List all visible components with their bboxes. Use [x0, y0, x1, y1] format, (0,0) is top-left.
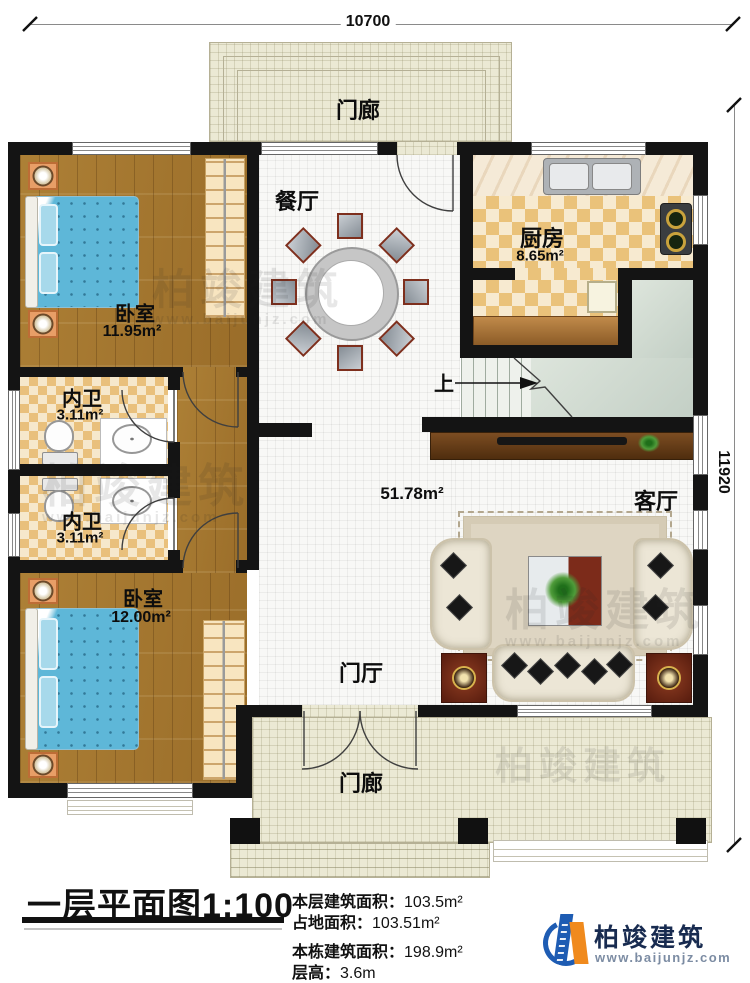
door-opening [397, 142, 457, 155]
room-label-bedroom2: 卧室 [123, 583, 163, 612]
dining-chair [403, 279, 429, 305]
stat-label: 占地面积： [292, 915, 372, 932]
lamp-icon [33, 755, 54, 776]
stat-value: 198.9m² [404, 944, 463, 961]
wall-segment [236, 367, 247, 377]
watermark-text: 柏竣建筑 [42, 462, 250, 510]
room-label-living: 客厅 [634, 484, 678, 516]
pillow [39, 676, 58, 728]
area-label-bedroom1: 11.95m² [103, 323, 162, 341]
window [693, 195, 708, 245]
watermark: 柏竣建筑 www.baijunjz.com [152, 268, 344, 328]
entry-steps [230, 843, 490, 878]
sink-basin [549, 163, 589, 190]
dimension-line-right [734, 105, 735, 845]
pillow [39, 252, 58, 294]
watermark-url: www.baijunjz.com [505, 634, 705, 650]
stove [660, 203, 692, 255]
watermark: 柏竣建筑 [495, 748, 671, 788]
nightstand [28, 752, 58, 778]
wall-segment [247, 423, 312, 437]
stat-floor-height: 层高：3.6m [292, 959, 376, 983]
watermark-text: 柏竣建筑 [505, 588, 705, 634]
wall-segment [460, 268, 515, 280]
lamp-icon [452, 666, 476, 690]
kitchen-lower-counter [473, 316, 620, 347]
wall-segment [460, 345, 632, 358]
watermark-text: 柏竣建筑 [152, 268, 344, 312]
brand-name: 柏竣建筑 [594, 918, 706, 954]
porch-column [676, 818, 706, 844]
stat-label: 层高： [292, 965, 340, 982]
wall-segment [693, 475, 708, 510]
stairs-up-label: 上 [434, 368, 454, 397]
wall-segment [460, 155, 473, 358]
area-label-hall: 51.78m² [380, 484, 443, 504]
stair-landing [531, 358, 693, 417]
pillow [39, 204, 58, 246]
floor-plan-canvas: 柏竣建筑 www.baijunjz.com 柏竣建筑 www.baijunjz.… [0, 0, 750, 983]
watermark-text: 柏竣建筑 [495, 748, 671, 788]
stat-land-area: 占地面积：103.51m² [292, 909, 440, 933]
wall-segment [652, 705, 708, 717]
porch-column [458, 818, 488, 844]
wall-segment [618, 268, 693, 280]
window [693, 510, 708, 550]
window [517, 705, 652, 717]
pillow [39, 618, 58, 670]
window [693, 415, 708, 475]
porch-column [230, 818, 260, 844]
kitchen-door-opening-floor [515, 268, 618, 280]
wall-segment [20, 367, 183, 377]
plant-icon [638, 434, 660, 452]
stat-value: 103.51m² [372, 915, 440, 932]
stair-treads [461, 358, 531, 417]
window [8, 513, 20, 557]
stair-landing-upper [632, 280, 693, 358]
wall-segment [693, 142, 708, 195]
brand-website: www.baijunjz.com [595, 950, 731, 965]
watermark: 柏竣建筑 www.baijunjz.com [505, 588, 705, 650]
wall-segment [20, 560, 183, 573]
room-label-foyer: 门厅 [339, 656, 383, 688]
window [261, 142, 378, 155]
dimension-label-right: 11920 [714, 445, 732, 499]
lamp-icon [33, 166, 54, 187]
nightstand [28, 578, 58, 604]
window [72, 142, 191, 155]
wall-segment [236, 560, 247, 573]
area-label-bedroom2: 12.00m² [111, 609, 171, 627]
nightstand [28, 310, 58, 338]
wall-segment [418, 705, 517, 717]
area-label-bath1: 3.11m² [57, 407, 104, 424]
wall-segment [693, 245, 708, 415]
sofa-left [430, 538, 492, 650]
window [67, 783, 193, 798]
toilet [44, 420, 74, 452]
bath-sink [112, 424, 152, 454]
dining-chair [337, 345, 363, 371]
wall-segment [378, 142, 397, 155]
wall-segment [618, 280, 632, 345]
wall-segment [8, 142, 20, 390]
area-label-bath2: 3.11m² [57, 530, 104, 547]
title-underline-thin [24, 928, 282, 930]
wall-segment [8, 783, 67, 798]
room-label-porch-top: 门廊 [336, 93, 380, 125]
bed-headboard [25, 608, 38, 750]
burner-icon [666, 209, 686, 229]
tv [497, 437, 627, 445]
wall-segment [457, 142, 531, 155]
title-underline [22, 917, 284, 923]
watermark-url: www.baijunjz.com [152, 312, 344, 328]
sink-basin [592, 163, 632, 190]
lamp-icon [33, 581, 54, 602]
wall-segment [422, 417, 693, 432]
side-table [646, 653, 692, 703]
dining-chair [337, 213, 363, 239]
nightstand [28, 162, 58, 190]
wall-segment [168, 377, 180, 390]
lamp-icon [33, 314, 54, 335]
lamp-icon [657, 666, 681, 690]
side-table [441, 653, 487, 703]
dimension-label-top: 10700 [341, 13, 396, 31]
burner-icon [666, 232, 686, 252]
window [8, 390, 20, 470]
door-opening [302, 705, 418, 717]
wall-segment [250, 705, 302, 717]
area-label-kitchen: 8.65m² [516, 248, 564, 265]
wall-segment [236, 705, 252, 798]
window [531, 142, 646, 155]
window-sill [67, 800, 193, 815]
wall-segment [8, 557, 20, 798]
room-label-porch-bottom: 门廊 [339, 766, 383, 798]
stat-value: 3.6m [340, 965, 376, 982]
room-label-dining: 餐厅 [275, 184, 319, 216]
fridge [587, 281, 617, 313]
bed-headboard [25, 196, 38, 308]
wall-segment [8, 470, 20, 513]
